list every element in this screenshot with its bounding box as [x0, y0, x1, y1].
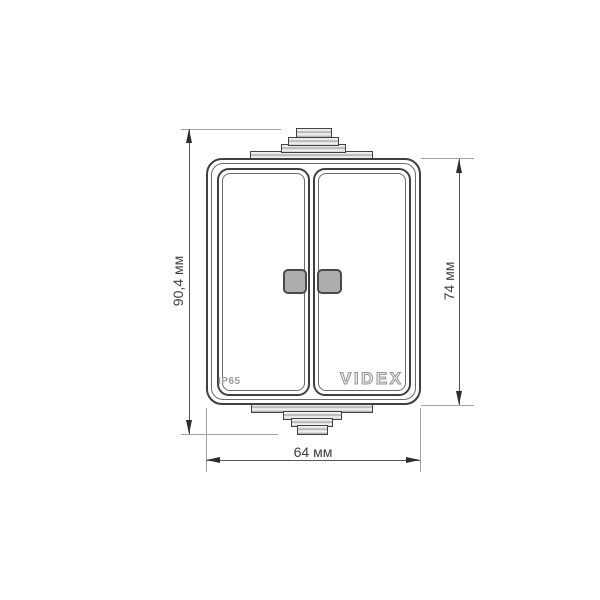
arrow-up-icon	[186, 129, 192, 143]
body-width-dimension-line	[206, 460, 420, 461]
bottom-cable-gland-tier-4	[297, 425, 328, 435]
body-height-extension-bottom	[421, 405, 474, 406]
body-height-extension-top	[421, 158, 474, 159]
top-cable-gland-tier-1	[296, 128, 332, 138]
body-width-extension-right	[420, 408, 421, 472]
overall-height-label: 90,4 мм	[170, 256, 186, 306]
arrow-down-icon	[186, 420, 192, 434]
indicator-window-right	[317, 269, 342, 294]
top-cable-gland-tier-2	[288, 137, 339, 146]
dimension-drawing-canvas: IP65 VIDEX 90,4 мм 74 мм 64 мм	[0, 0, 600, 600]
overall-height-extension-bottom	[181, 434, 278, 435]
arrow-right-icon	[406, 457, 420, 463]
body-height-dimension-line	[459, 159, 460, 405]
indicator-window-left	[283, 269, 307, 294]
arrow-down-icon	[456, 391, 462, 405]
arrow-left-icon	[206, 457, 220, 463]
body-height-label: 74 мм	[441, 262, 457, 301]
arrow-up-icon	[456, 159, 462, 173]
overall-height-dimension-line	[189, 129, 190, 434]
ip-rating-label: IP65	[218, 376, 241, 387]
body-width-label: 64 мм	[294, 444, 333, 460]
overall-height-extension-top	[181, 129, 281, 130]
videx-brand-logo: VIDEX	[340, 369, 404, 389]
